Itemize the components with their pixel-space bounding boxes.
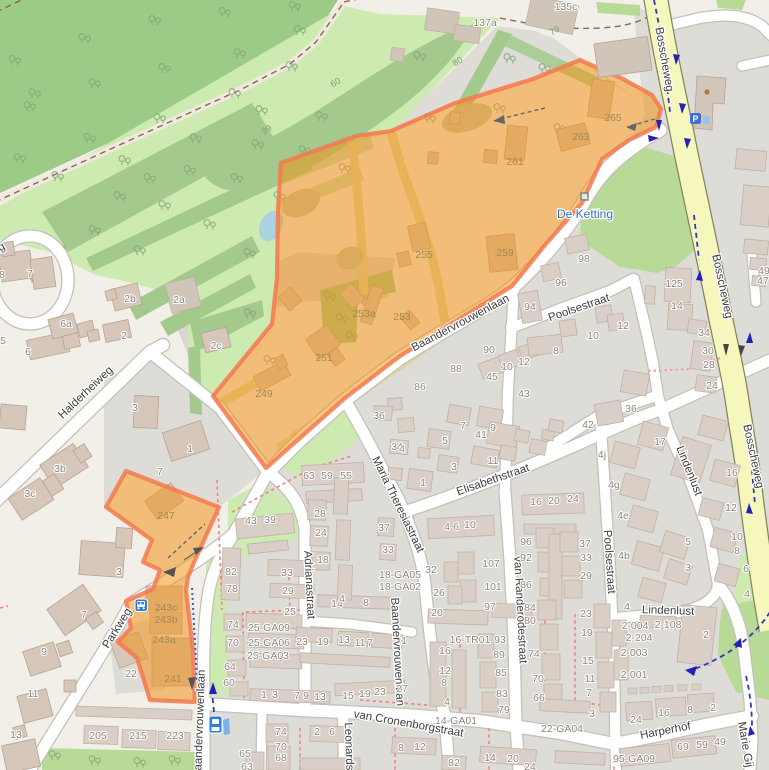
- svg-text:80: 80: [524, 615, 536, 627]
- svg-text:29: 29: [580, 570, 592, 582]
- svg-text:15: 15: [582, 655, 594, 667]
- svg-text:255: 255: [415, 249, 433, 261]
- svg-text:10: 10: [464, 519, 476, 531]
- svg-text:249: 249: [255, 388, 273, 400]
- svg-text:11: 11: [488, 455, 499, 467]
- svg-text:7: 7: [294, 690, 300, 702]
- svg-text:223: 223: [166, 730, 184, 742]
- svg-text:2a: 2a: [173, 294, 185, 306]
- svg-text:259: 259: [496, 247, 514, 259]
- svg-text:36: 36: [373, 410, 385, 422]
- svg-text:95-GA09: 95-GA09: [613, 753, 655, 765]
- svg-text:66: 66: [533, 692, 545, 704]
- svg-text:2: 2: [314, 726, 320, 738]
- svg-text:24: 24: [567, 493, 579, 505]
- svg-text:265: 265: [604, 112, 622, 124]
- svg-text:107: 107: [482, 558, 500, 570]
- svg-text:14-GA01: 14-GA01: [435, 715, 477, 727]
- svg-text:2-204: 2-204: [626, 632, 653, 644]
- svg-text:65: 65: [239, 748, 251, 760]
- svg-text:253a: 253a: [352, 308, 376, 320]
- svg-text:3: 3: [451, 461, 457, 473]
- svg-text:6a: 6a: [60, 318, 72, 330]
- svg-text:12: 12: [518, 356, 530, 368]
- svg-text:6: 6: [453, 521, 459, 533]
- svg-text:29: 29: [282, 585, 294, 597]
- svg-text:7: 7: [586, 687, 592, 699]
- svg-text:27: 27: [396, 683, 408, 695]
- svg-text:16: 16: [439, 645, 451, 657]
- svg-text:89: 89: [493, 649, 505, 661]
- svg-text:2c: 2c: [210, 340, 221, 352]
- svg-text:1: 1: [187, 443, 193, 455]
- svg-text:12: 12: [617, 320, 629, 332]
- svg-text:5: 5: [0, 335, 6, 347]
- svg-text:2-108: 2-108: [655, 619, 682, 631]
- svg-text:243c: 243c: [155, 602, 178, 614]
- svg-text:20: 20: [548, 495, 560, 507]
- svg-text:45: 45: [486, 371, 498, 383]
- svg-text:23: 23: [296, 636, 308, 648]
- svg-text:79: 79: [498, 704, 510, 716]
- svg-text:92: 92: [520, 552, 532, 564]
- svg-text:74: 74: [227, 619, 239, 631]
- svg-text:125: 125: [665, 278, 683, 290]
- svg-text:6: 6: [329, 726, 335, 738]
- svg-text:25-GA03: 25-GA03: [247, 650, 289, 662]
- svg-text:243a: 243a: [152, 634, 176, 646]
- svg-text:11: 11: [355, 637, 366, 649]
- svg-text:24: 24: [706, 380, 718, 392]
- svg-text:30: 30: [702, 345, 714, 357]
- svg-text:7: 7: [157, 466, 163, 478]
- svg-text:12: 12: [414, 741, 426, 753]
- svg-text:7: 7: [81, 609, 87, 621]
- svg-text:263: 263: [572, 131, 590, 143]
- svg-text:18: 18: [317, 554, 329, 566]
- svg-text:74: 74: [528, 648, 540, 660]
- svg-text:33: 33: [580, 552, 592, 564]
- svg-text:60: 60: [223, 677, 235, 689]
- svg-text:22: 22: [125, 668, 137, 680]
- svg-text:70: 70: [532, 673, 544, 685]
- svg-text:64: 64: [224, 661, 236, 673]
- svg-text:4b: 4b: [618, 550, 630, 562]
- svg-text:84: 84: [524, 602, 536, 614]
- svg-text:P: P: [692, 114, 698, 124]
- svg-text:85: 85: [495, 667, 507, 679]
- svg-text:8: 8: [553, 345, 559, 357]
- svg-text:82: 82: [448, 757, 460, 769]
- svg-text:70: 70: [227, 637, 239, 649]
- svg-text:1: 1: [401, 635, 407, 647]
- svg-text:8: 8: [734, 545, 740, 557]
- svg-text:135c: 135c: [555, 1, 578, 13]
- svg-text:Lindenlust: Lindenlust: [642, 604, 696, 618]
- svg-text:253: 253: [393, 311, 411, 323]
- svg-text:1: 1: [261, 689, 267, 701]
- svg-text:24: 24: [630, 714, 642, 726]
- svg-text:16-TR01: 16-TR01: [450, 634, 491, 646]
- svg-text:4: 4: [624, 601, 630, 613]
- svg-text:23: 23: [580, 608, 592, 620]
- svg-text:11: 11: [28, 688, 39, 700]
- svg-text:59: 59: [321, 470, 333, 482]
- svg-text:4g: 4g: [608, 479, 620, 491]
- svg-text:15: 15: [342, 690, 354, 702]
- svg-text:8: 8: [363, 597, 369, 609]
- svg-text:8: 8: [687, 704, 693, 716]
- svg-text:37: 37: [378, 522, 390, 534]
- svg-text:10: 10: [587, 330, 599, 342]
- svg-text:33: 33: [281, 567, 293, 579]
- svg-text:28: 28: [703, 359, 715, 371]
- svg-text:17: 17: [654, 436, 666, 448]
- svg-text:96: 96: [555, 277, 567, 289]
- svg-text:3: 3: [272, 689, 278, 701]
- svg-text:9: 9: [490, 422, 496, 434]
- svg-text:3: 3: [132, 402, 138, 414]
- svg-text:4: 4: [444, 521, 450, 533]
- svg-text:86: 86: [414, 381, 426, 393]
- svg-text:97: 97: [484, 601, 496, 613]
- svg-text:4j: 4j: [598, 449, 606, 461]
- svg-text:14: 14: [671, 300, 683, 312]
- svg-text:98: 98: [578, 253, 590, 265]
- svg-text:1: 1: [420, 477, 426, 489]
- svg-text:25-GA09: 25-GA09: [248, 622, 290, 634]
- svg-text:12: 12: [439, 665, 451, 677]
- svg-text:47: 47: [757, 275, 769, 287]
- svg-text:20: 20: [507, 753, 519, 765]
- svg-text:2b: 2b: [124, 293, 136, 305]
- svg-text:42: 42: [582, 419, 594, 431]
- svg-text:83: 83: [496, 688, 508, 700]
- svg-text:86: 86: [520, 579, 532, 591]
- svg-text:74: 74: [275, 726, 287, 738]
- svg-text:59: 59: [696, 739, 708, 751]
- svg-text:20: 20: [431, 607, 443, 619]
- svg-text:4: 4: [339, 593, 345, 605]
- svg-text:16: 16: [530, 496, 542, 508]
- svg-text:33: 33: [382, 544, 394, 556]
- svg-text:3: 3: [116, 566, 122, 578]
- svg-text:26: 26: [433, 587, 445, 599]
- svg-text:25-GA06: 25-GA06: [248, 637, 290, 649]
- svg-text:205: 205: [89, 730, 107, 742]
- svg-text:241: 241: [164, 673, 182, 685]
- svg-text:261: 261: [506, 156, 524, 168]
- svg-text:69: 69: [677, 741, 689, 753]
- svg-text:6: 6: [25, 346, 31, 358]
- svg-text:25: 25: [284, 606, 296, 618]
- svg-text:2-004: 2-004: [622, 620, 649, 632]
- svg-text:5: 5: [685, 536, 691, 548]
- svg-text:34: 34: [698, 327, 710, 339]
- svg-text:22-GA04: 22-GA04: [541, 723, 583, 735]
- svg-text:251: 251: [315, 352, 333, 364]
- svg-text:4: 4: [444, 696, 450, 708]
- svg-text:10: 10: [501, 361, 513, 373]
- svg-text:6: 6: [743, 563, 749, 575]
- svg-text:4e: 4e: [617, 510, 629, 522]
- svg-text:9: 9: [41, 646, 47, 658]
- svg-text:39: 39: [264, 514, 276, 526]
- svg-text:14: 14: [484, 752, 496, 764]
- svg-text:13: 13: [314, 691, 326, 703]
- svg-text:93: 93: [494, 634, 506, 646]
- svg-text:36: 36: [625, 403, 637, 415]
- svg-text:2: 2: [710, 702, 716, 714]
- svg-text:19: 19: [359, 688, 371, 700]
- svg-text:96: 96: [520, 536, 532, 548]
- svg-text:3b: 3b: [54, 463, 66, 475]
- svg-text:13: 13: [10, 729, 22, 741]
- svg-text:243b: 243b: [154, 614, 178, 626]
- svg-text:18-GA05: 18-GA05: [379, 569, 421, 581]
- svg-text:2: 2: [121, 330, 127, 342]
- svg-text:19: 19: [317, 636, 329, 648]
- svg-text:24: 24: [315, 527, 327, 539]
- svg-text:215: 215: [129, 730, 147, 742]
- svg-text:88: 88: [450, 363, 462, 375]
- svg-text:41: 41: [475, 429, 487, 441]
- svg-text:18-GA02: 18-GA02: [379, 581, 421, 593]
- svg-text:2-003: 2-003: [621, 647, 648, 659]
- svg-text:De Ketting: De Ketting: [557, 207, 613, 221]
- svg-text:101: 101: [484, 581, 502, 593]
- svg-text:82: 82: [225, 566, 237, 578]
- svg-text:9: 9: [303, 690, 309, 702]
- svg-text:49: 49: [714, 736, 726, 748]
- svg-text:37: 37: [579, 538, 591, 550]
- svg-text:23: 23: [374, 686, 386, 698]
- svg-text:94: 94: [524, 301, 536, 313]
- svg-text:43: 43: [518, 388, 530, 400]
- svg-text:63: 63: [303, 470, 315, 482]
- svg-text:5: 5: [442, 435, 448, 447]
- svg-text:4: 4: [399, 443, 405, 455]
- svg-text:2-001: 2-001: [621, 669, 648, 681]
- svg-text:13: 13: [338, 634, 350, 646]
- svg-text:3c: 3c: [24, 488, 35, 500]
- svg-text:12: 12: [725, 502, 737, 514]
- svg-text:7: 7: [367, 637, 373, 649]
- svg-text:8: 8: [441, 677, 447, 689]
- svg-text:247: 247: [157, 510, 175, 522]
- svg-text:90: 90: [483, 344, 495, 356]
- svg-text:68: 68: [275, 752, 287, 764]
- svg-text:28: 28: [314, 508, 326, 520]
- svg-text:7: 7: [27, 268, 33, 280]
- svg-text:11: 11: [585, 673, 596, 685]
- svg-text:8: 8: [398, 742, 404, 754]
- svg-text:19: 19: [581, 627, 593, 639]
- svg-text:137a: 137a: [473, 17, 497, 29]
- svg-text:43: 43: [245, 515, 257, 527]
- svg-text:4: 4: [744, 588, 750, 600]
- svg-text:10: 10: [731, 531, 743, 543]
- svg-text:8: 8: [0, 269, 5, 281]
- svg-text:3: 3: [685, 562, 691, 574]
- svg-text:16: 16: [726, 467, 738, 479]
- svg-text:2: 2: [703, 629, 709, 641]
- svg-text:7: 7: [460, 420, 466, 432]
- svg-text:16: 16: [658, 707, 670, 719]
- svg-text:32: 32: [425, 564, 437, 576]
- svg-text:78: 78: [226, 583, 238, 595]
- svg-text:24: 24: [524, 761, 536, 770]
- svg-text:63: 63: [241, 761, 253, 770]
- svg-text:3: 3: [589, 708, 595, 720]
- svg-text:Leonardstraat: Leonardstraat: [342, 722, 356, 770]
- svg-text:55: 55: [340, 470, 352, 482]
